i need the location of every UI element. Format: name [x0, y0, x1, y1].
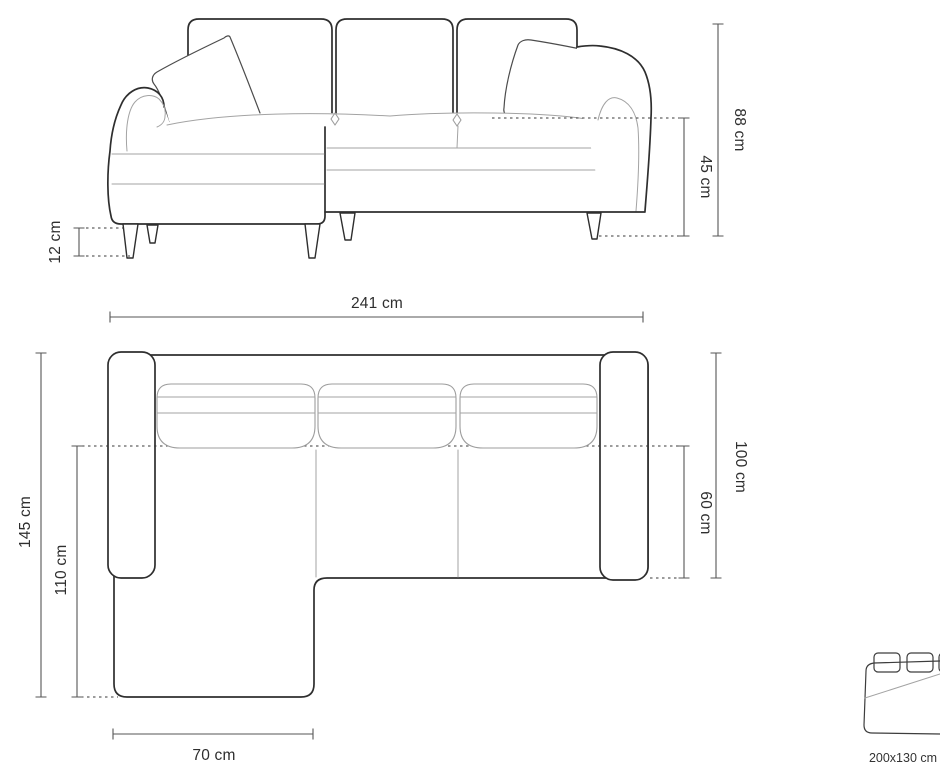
leg-height-label: 12 cm — [47, 220, 64, 263]
bed-duvet-fold-line — [865, 674, 940, 698]
total-width-label: 241 cm — [351, 295, 403, 312]
top-view-left-armrest — [108, 352, 155, 578]
total-height-label: 88 cm — [731, 108, 748, 151]
front-view-drawing — [108, 19, 652, 258]
dim-body-depth: 100 cm — [711, 353, 750, 578]
sleeping-area-label: 200x130 cm — [869, 751, 937, 765]
back-cushion — [157, 384, 315, 448]
chaise-length-label: 110 cm — [53, 545, 70, 596]
seat-height-label: 45 cm — [697, 155, 714, 198]
dim-chaise-width: 70 cm — [113, 729, 313, 765]
body-depth-label: 100 cm — [732, 441, 749, 493]
top-view-right-armrest — [600, 352, 648, 580]
sofa-dimensions-diagram: 88 cm 45 cm 12 cm 241 cm — [0, 0, 940, 780]
dim-total-depth: 145 cm — [17, 353, 47, 697]
seat-depth-label: 60 cm — [697, 491, 714, 534]
back-cushion — [460, 384, 597, 448]
sofa-leg — [147, 225, 158, 243]
dim-total-width: 241 cm — [110, 295, 643, 323]
total-depth-label: 145 cm — [17, 496, 34, 548]
backrest-panel-middle — [336, 19, 453, 118]
sofa-leg — [123, 224, 138, 258]
dim-seat-height: 45 cm — [679, 118, 715, 236]
sofa-leg — [305, 224, 320, 258]
sofa-leg — [587, 213, 601, 239]
sofa-leg — [340, 213, 355, 240]
chaise-width-label: 70 cm — [192, 747, 235, 764]
dim-leg-height: 12 cm — [47, 220, 85, 263]
top-view-drawing — [76, 352, 686, 697]
back-cushion — [318, 384, 456, 448]
sofa-technical-drawing: 88 cm 45 cm 12 cm 241 cm — [0, 0, 940, 780]
sleeping-function-icon: 200x130 cm — [864, 653, 940, 765]
bed-pillow-icon — [907, 653, 933, 672]
dim-chaise-length: 110 cm — [53, 446, 83, 697]
dim-total-height: 88 cm — [713, 24, 749, 236]
dim-seat-depth: 60 cm — [679, 446, 715, 578]
